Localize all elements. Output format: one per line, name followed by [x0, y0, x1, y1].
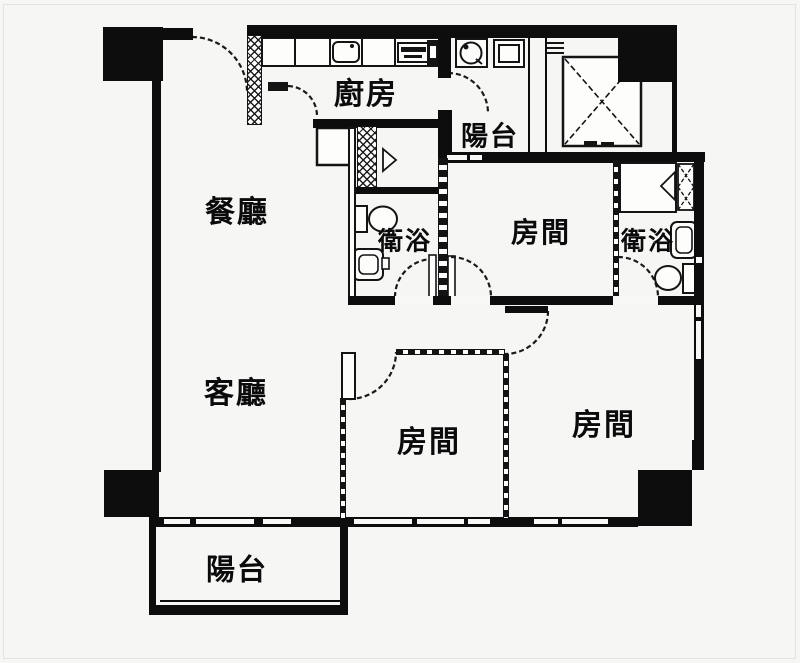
wall-closet-bottom: [356, 187, 440, 194]
room-label-bedroom-top-right: 房間: [511, 219, 571, 247]
door-gap-bath-right: [613, 296, 658, 305]
window-topbalcony-1: [447, 155, 467, 160]
window-living-2: [196, 519, 254, 524]
scan-border-artifact: [3, 4, 796, 659]
floor-plan: 廚房 陽台 餐廳 衛浴 房間 衛浴 客廳 房間 房間 陽台: [0, 0, 800, 663]
balcony-inner-line: [160, 600, 340, 602]
wall-balcony-bottom: [149, 605, 348, 615]
window-right-1: [696, 303, 701, 317]
door-gap-bath-center: [395, 296, 433, 305]
window-living-1: [164, 519, 190, 524]
window-bedroom-br-1: [534, 519, 558, 524]
room-label-kitchen: 廚房: [334, 80, 398, 110]
window-living-3: [263, 519, 291, 524]
window-right-2: [696, 321, 701, 359]
wall-dash-bedroommid-top: [396, 349, 505, 355]
window-bedroom-br-2: [562, 519, 608, 524]
window-bedroom-mid-2: [417, 519, 464, 524]
column-bottom-right: [638, 470, 692, 526]
wall-left: [152, 79, 161, 472]
wall-block-left: [348, 127, 356, 305]
column-top-right: [618, 25, 677, 82]
wall-kitchen-balcony-a: [438, 38, 451, 78]
wall-right-step: [692, 440, 703, 470]
door-gap-bedroom-tr: [451, 296, 490, 305]
window-bedroom-mid-1: [354, 519, 412, 524]
window-bedroom-mid-3: [468, 519, 490, 524]
wall-dash-bedroomtr-left: [438, 158, 448, 298]
wall-right-upper: [672, 82, 677, 152]
window-topbalcony-2: [470, 155, 482, 160]
room-label-bath-center: 衛浴: [378, 229, 432, 254]
wall-balcony-left: [149, 517, 156, 615]
room-label-bedroom-mid: 房間: [397, 428, 461, 458]
wall-top-entry: [160, 28, 193, 40]
room-label-bedroom-bottom-right: 房間: [572, 411, 636, 441]
door-panel-bedroom-br: [505, 306, 548, 313]
room-label-bath-right: 衛浴: [621, 229, 675, 254]
room-label-living: 客廳: [204, 379, 268, 409]
wall-kitchen-bottom: [313, 119, 452, 128]
door-panel-bedroom-mid: [341, 352, 356, 400]
wall-dash-bedroommid-left: [340, 398, 346, 518]
wall-bathright-top: [613, 152, 705, 162]
column-bottom-left: [104, 470, 159, 517]
lobby-line-1: [528, 38, 530, 152]
lobby-line-2: [545, 38, 547, 152]
pipe-duct-strip: [357, 126, 377, 188]
wall-right-gap: [696, 257, 702, 263]
wall-top-main: [247, 25, 620, 38]
wall-balcony-right: [340, 520, 348, 615]
wall-dash-bathright-left: [613, 160, 619, 303]
wall-hatch-entry-kitchen: [247, 35, 262, 125]
column-top-left: [103, 27, 163, 81]
room-label-balcony-top: 陽台: [461, 124, 519, 151]
wall-dash-bedroombr-left: [503, 354, 509, 518]
room-label-balcony-bottom: 陽台: [206, 556, 268, 585]
room-label-dining: 餐廳: [205, 198, 269, 228]
